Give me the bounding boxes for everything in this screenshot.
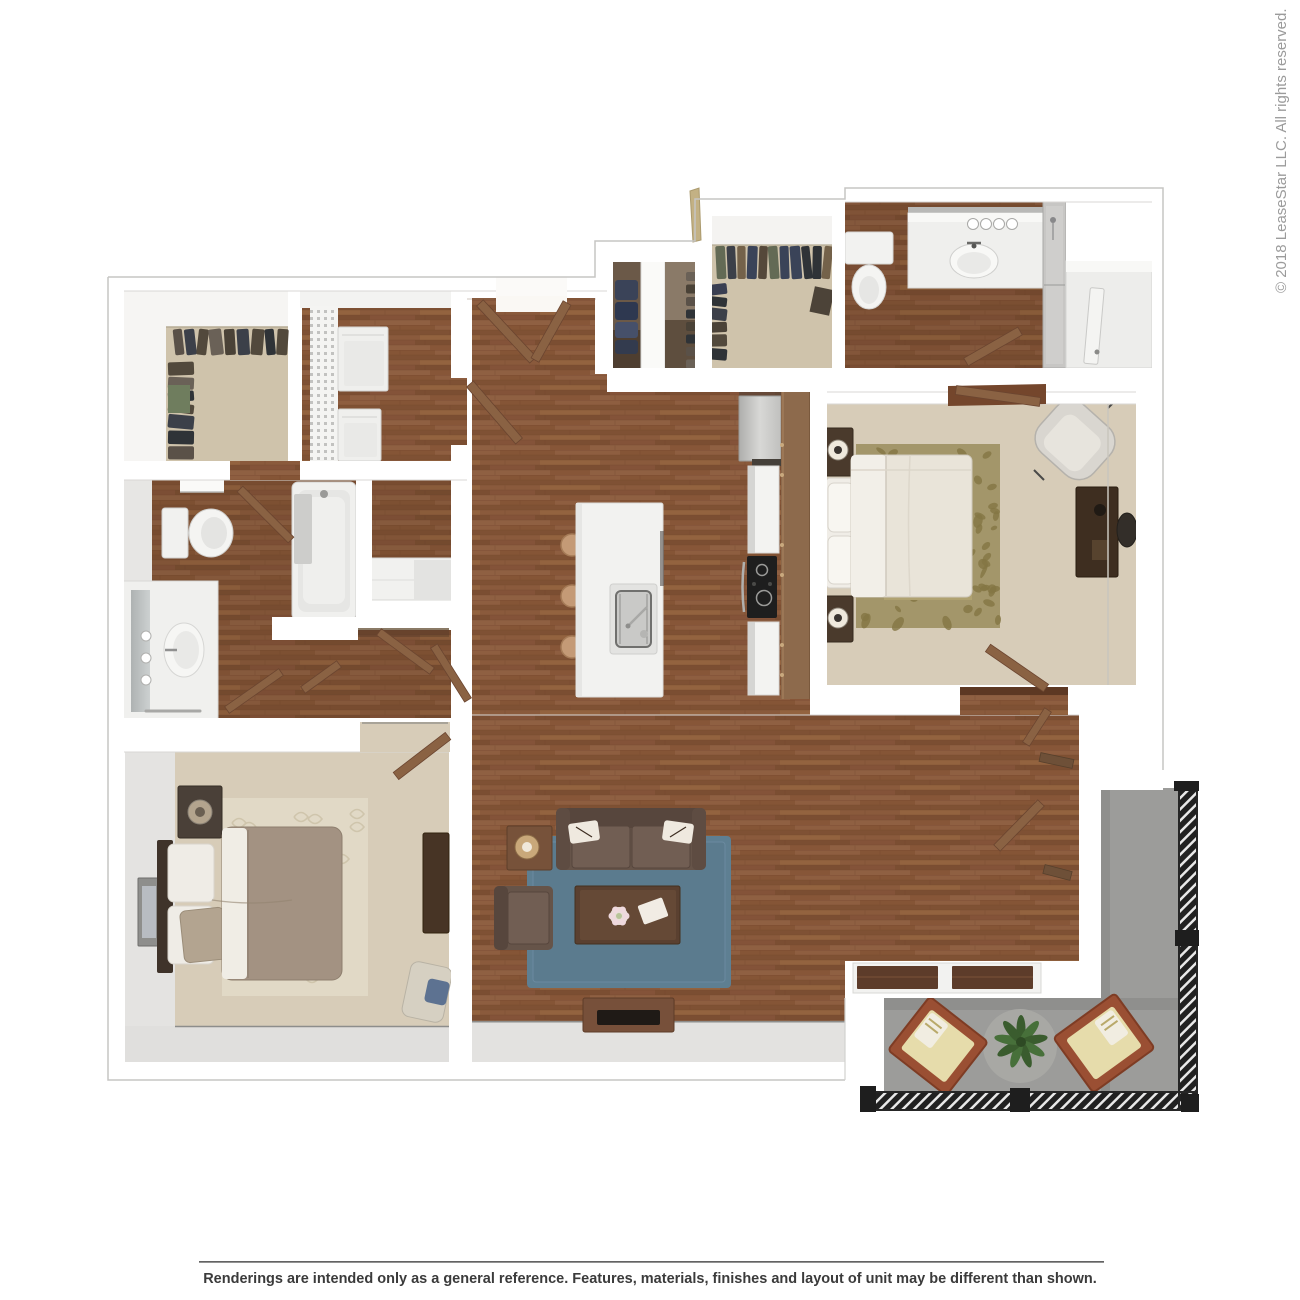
svg-text:Renderings are intended only a: Renderings are intended only as a genera… <box>203 1271 1097 1287</box>
svg-text:© 2018 LeaseStar LLC. All righ: © 2018 LeaseStar LLC. All rights reserve… <box>1273 8 1290 293</box>
